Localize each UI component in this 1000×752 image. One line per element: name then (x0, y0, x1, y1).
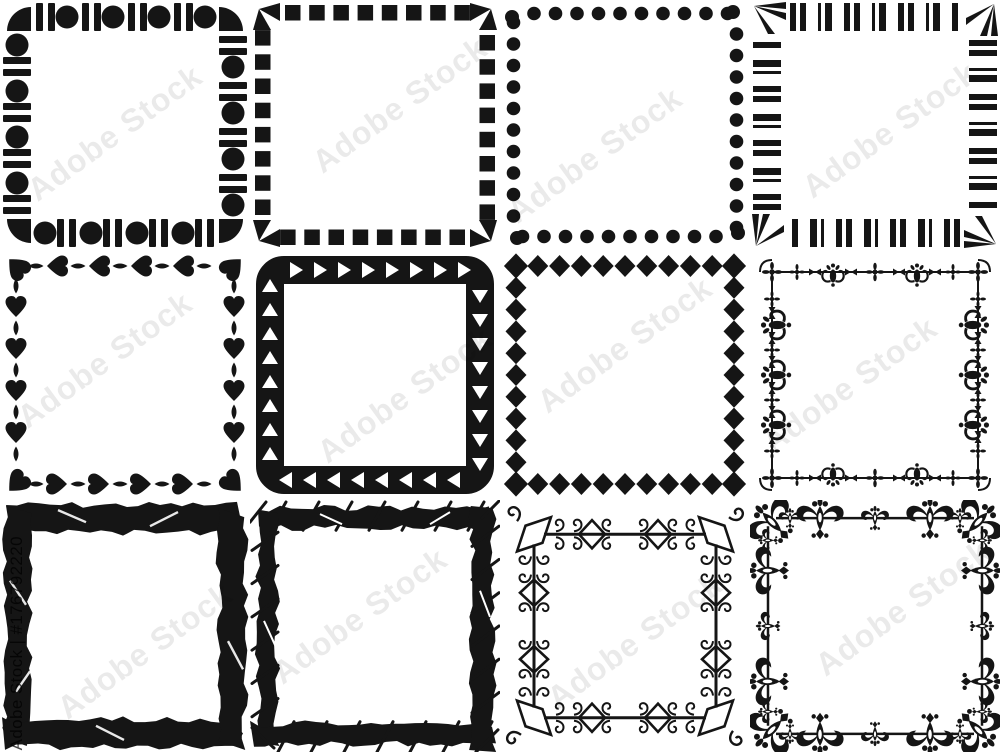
frame-cell: Adobe Stock (250, 500, 500, 752)
frame-cell: Adobe Stock (250, 0, 500, 250)
triangle-band-frame (250, 250, 500, 500)
damask-ornament-frame (750, 500, 1000, 752)
frame-cell: Adobe Stock (250, 250, 500, 500)
stock-id-watermark: Adobe Stock | #176792220 (7, 536, 27, 750)
frame-cell: Adobe Stock (750, 0, 1000, 250)
curly-flourish-frame (500, 500, 750, 752)
frame-cell: Adobe Stock (0, 0, 250, 250)
frames-grid: Adobe StockAdobe StockAdobe StockAdobe S… (0, 0, 1000, 752)
frame-cell: Adobe Stock (500, 500, 750, 752)
frame-cell: Adobe Stock (0, 250, 250, 500)
frame-cell: Adobe Stock (500, 250, 750, 500)
frame-cell: Adobe Stock (0, 500, 250, 752)
grunge-sketch-frame (250, 500, 500, 752)
grunge-marker-frame (0, 500, 250, 752)
dotted-frame (500, 0, 750, 250)
barcode-stripes-frame (750, 0, 1000, 250)
frame-cell: Adobe Stock (750, 500, 1000, 752)
diamonds-frame (500, 250, 750, 500)
dashed-squares-frame (250, 0, 500, 250)
stock-image-preview: Adobe StockAdobe StockAdobe StockAdobe S… (0, 0, 1000, 752)
frame-cell: Adobe Stock (500, 0, 750, 250)
circles-and-bars-frame (0, 0, 250, 250)
delicate-ornament-frame (750, 250, 1000, 500)
hearts-frame (0, 250, 250, 500)
frame-cell: Adobe Stock (750, 250, 1000, 500)
